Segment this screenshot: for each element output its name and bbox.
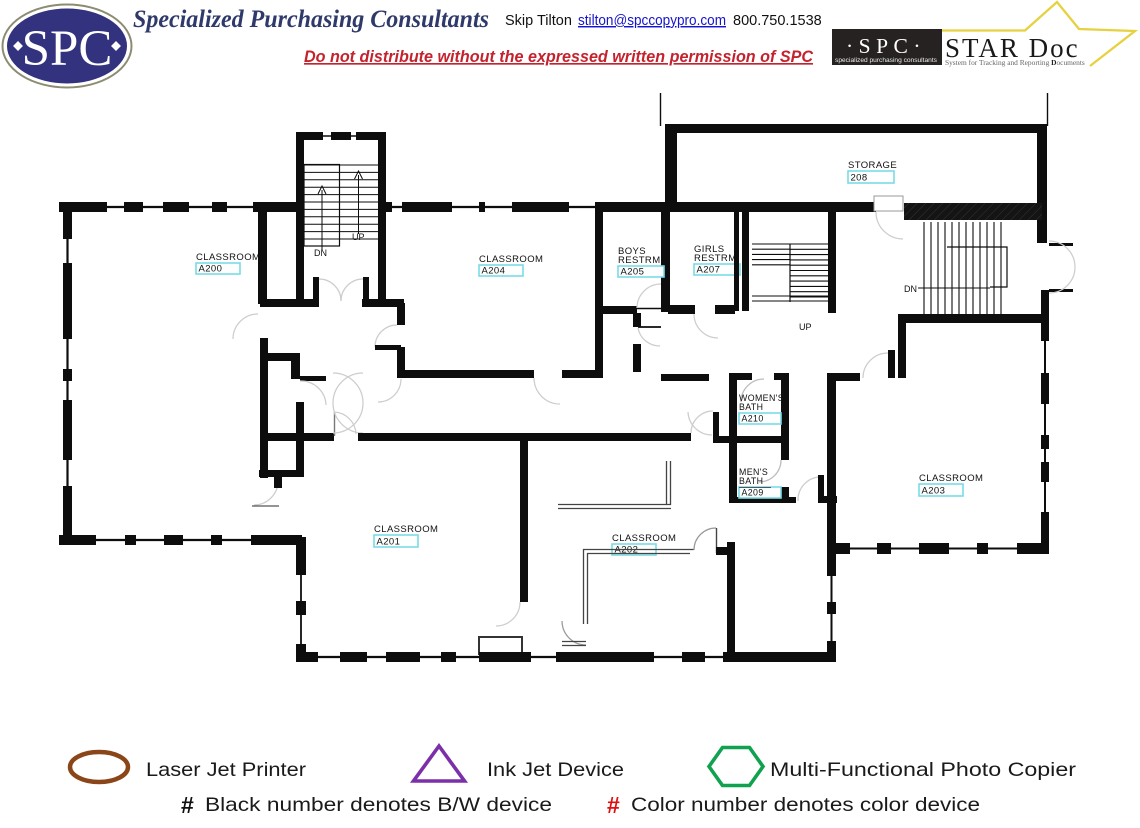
svg-text:BATH: BATH <box>739 402 763 412</box>
svg-text:System for Tracking and Report: System for Tracking and Reporting Docume… <box>945 58 1085 67</box>
svg-text:CLASSROOM: CLASSROOM <box>612 533 676 544</box>
svg-text:A207: A207 <box>697 265 721 276</box>
svg-text:DN: DN <box>904 284 917 294</box>
svg-text:·SPC·: ·SPC· <box>846 34 926 58</box>
svg-text:Black number denotes B/W devic: Black number denotes B/W device <box>205 794 552 816</box>
svg-text:Specialized Purchasing Consult: Specialized Purchasing Consultants <box>133 6 489 33</box>
svg-text:CLASSROOM: CLASSROOM <box>479 254 543 265</box>
svg-text:Color number denotes color dev: Color number denotes color device <box>631 794 980 816</box>
svg-text:Do not distribute without the: Do not distribute without the expressed … <box>304 48 814 66</box>
svg-text:A204: A204 <box>482 266 506 277</box>
svg-text:RESTRM: RESTRM <box>694 253 737 264</box>
svg-text:BATH: BATH <box>739 476 763 486</box>
svg-text:STORAGE: STORAGE <box>848 160 897 171</box>
svg-text:A205: A205 <box>621 267 645 278</box>
svg-text:CLASSROOM: CLASSROOM <box>196 252 260 263</box>
svg-text:CLASSROOM: CLASSROOM <box>374 524 438 535</box>
svg-text:#: # <box>607 792 620 818</box>
svg-text:800.750.1538: 800.750.1538 <box>733 13 822 29</box>
svg-text:208: 208 <box>851 173 868 184</box>
svg-text:RESTRM: RESTRM <box>618 255 661 266</box>
svg-text:A209: A209 <box>742 488 764 498</box>
svg-text:A201: A201 <box>377 537 401 548</box>
svg-text:CLASSROOM: CLASSROOM <box>919 473 983 484</box>
svg-text:#: # <box>181 792 194 818</box>
svg-text:UP: UP <box>352 232 365 242</box>
svg-text:Laser Jet Printer: Laser Jet Printer <box>146 759 307 781</box>
svg-text:Ink Jet Device: Ink Jet Device <box>487 759 624 781</box>
svg-text:UP: UP <box>799 322 812 332</box>
svg-text:A203: A203 <box>922 486 946 497</box>
svg-text:SPC: SPC <box>22 21 113 77</box>
svg-text:A200: A200 <box>199 264 223 275</box>
svg-text:A210: A210 <box>742 414 764 424</box>
svg-text:Skip Tilton: Skip Tilton <box>505 13 572 29</box>
svg-text:specialized purchasing consult: specialized purchasing consultants <box>835 57 938 64</box>
svg-text:Multi-Functional Photo Copier: Multi-Functional Photo Copier <box>770 759 1077 781</box>
svg-text:stilton@spccopypro.com: stilton@spccopypro.com <box>578 13 726 29</box>
svg-text:DN: DN <box>314 248 327 258</box>
